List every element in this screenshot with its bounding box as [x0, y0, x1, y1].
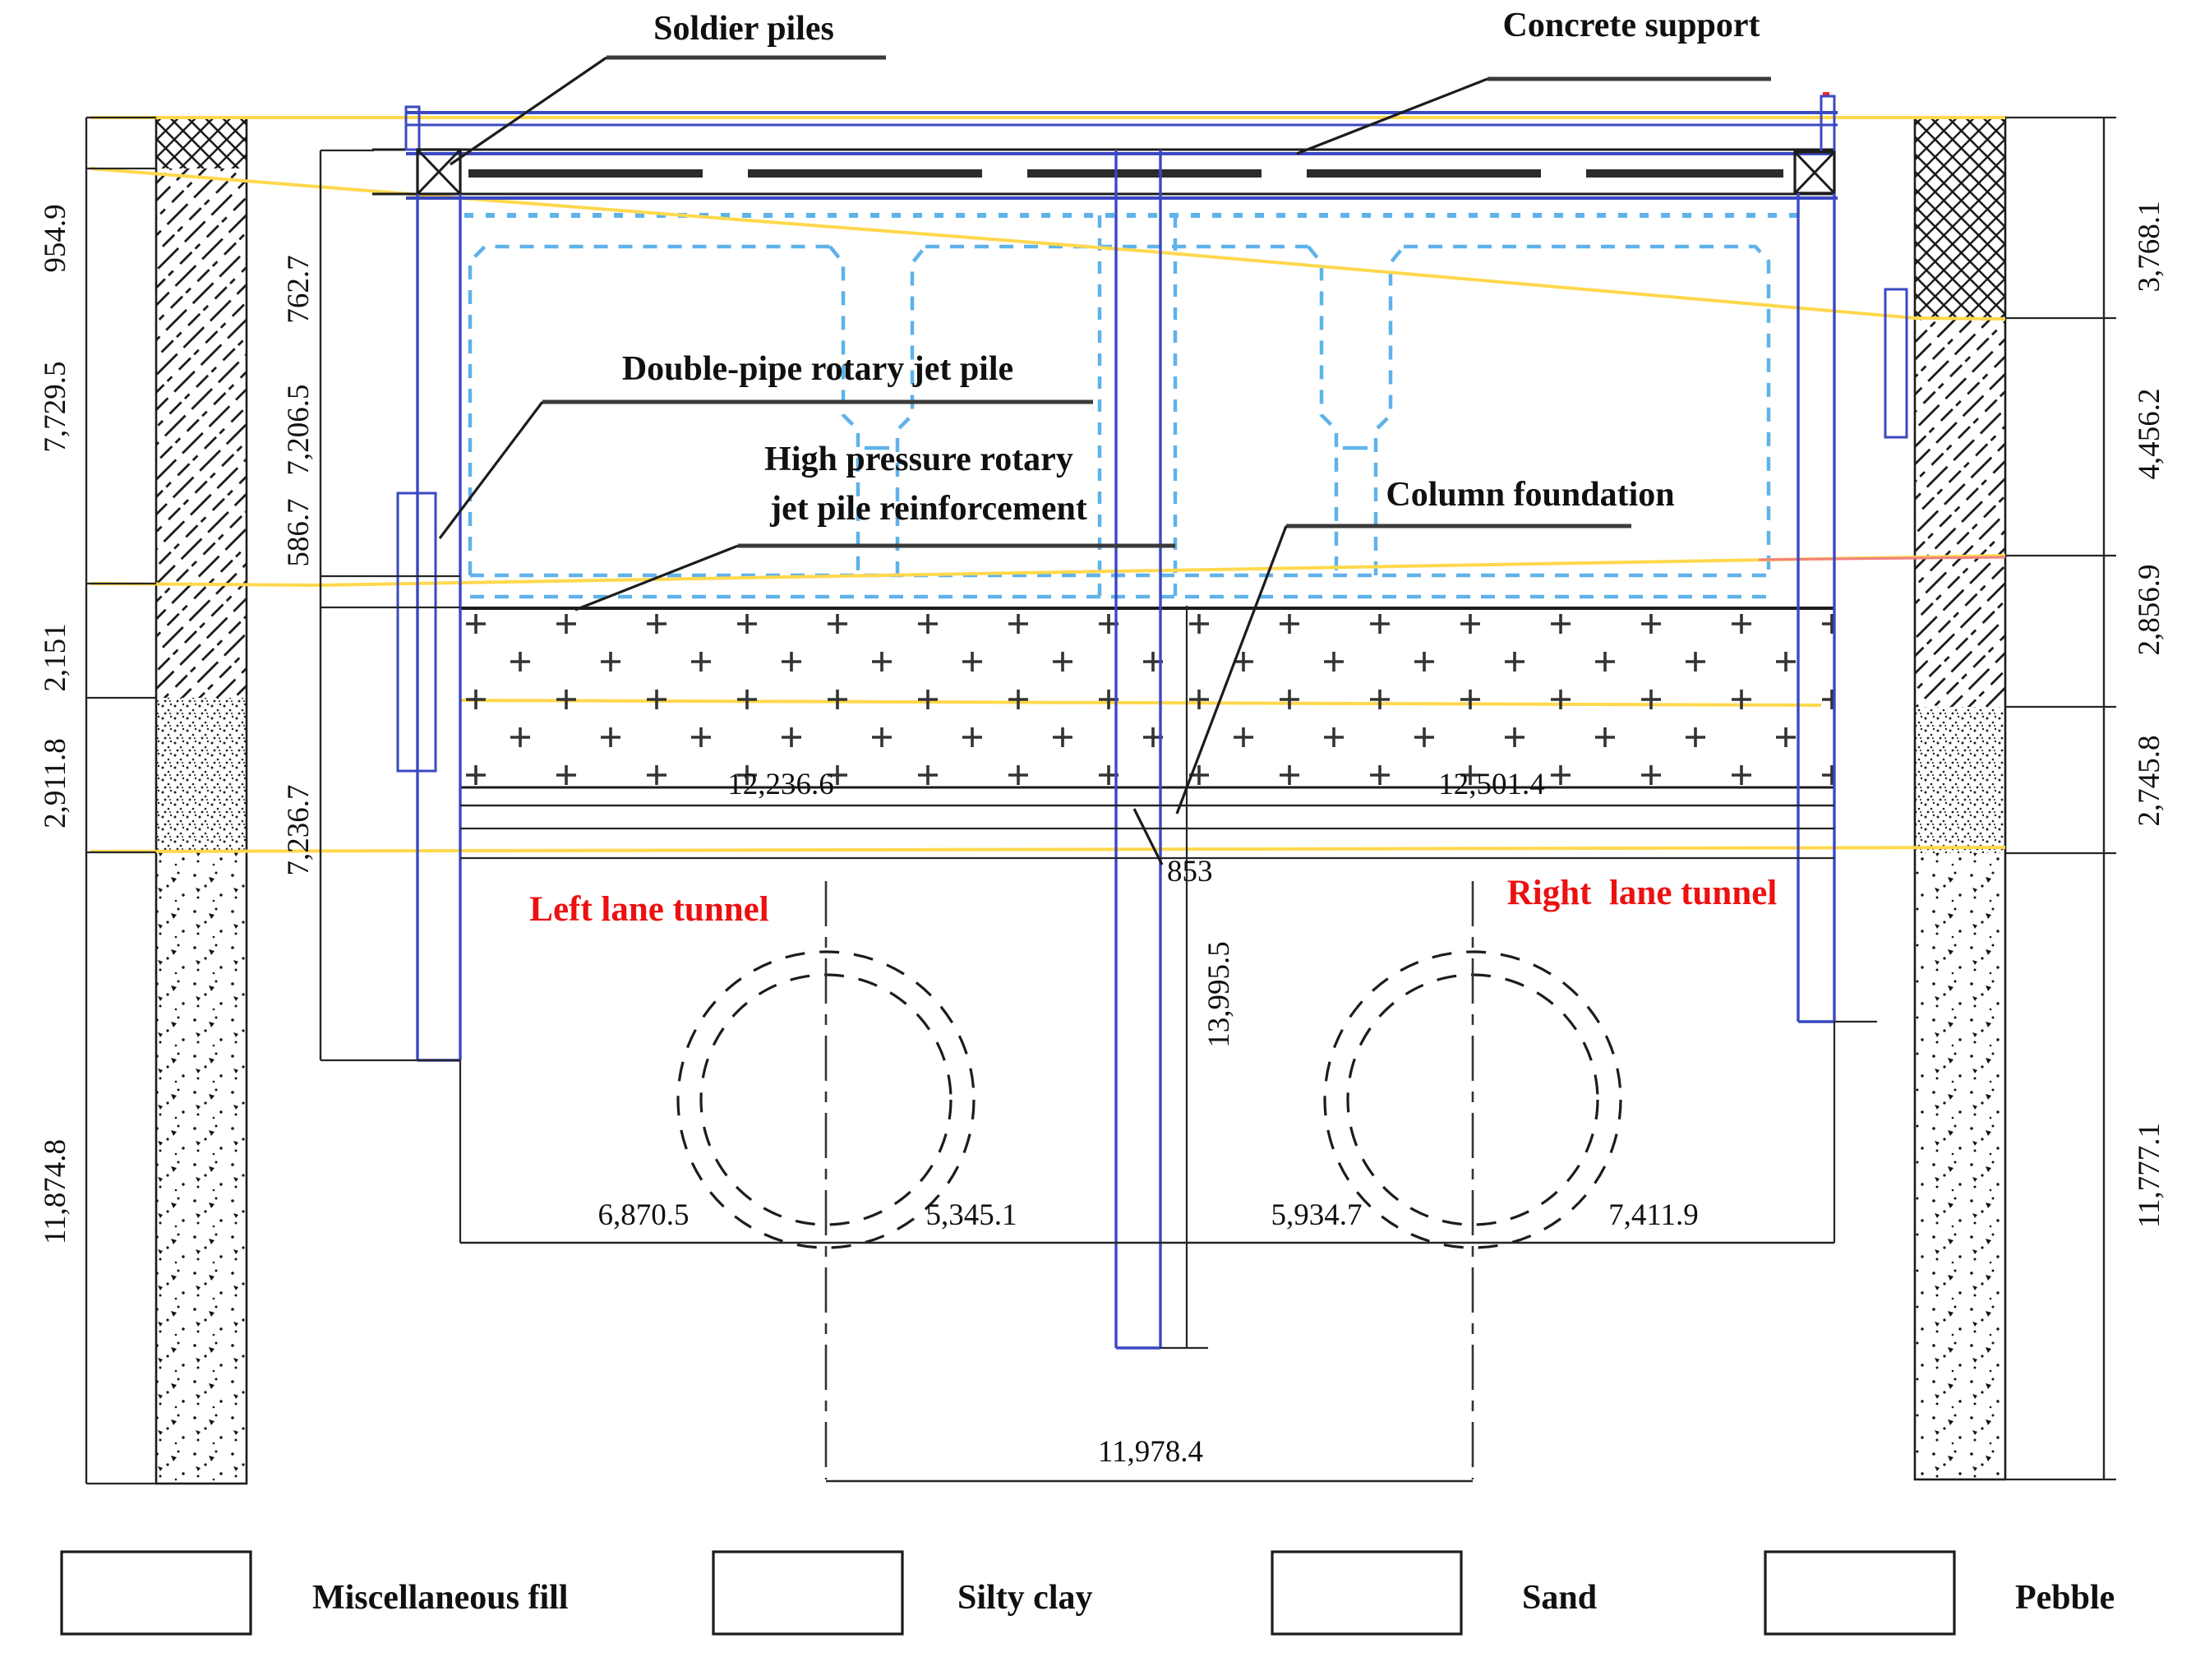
dim-bottom-1: 5,345.1 — [926, 1198, 1017, 1232]
dim-right-outer-2: 2,856.9 — [2133, 565, 2166, 656]
reinforcement-zone — [460, 608, 1834, 787]
legend-item-silty-clay: Silty clay — [713, 1552, 1093, 1634]
left-layer-sand — [156, 698, 247, 852]
callouts: Soldier piles Concrete support Double-pi… — [440, 7, 1777, 929]
dim-left-inner-3: 7,236.7 — [282, 785, 316, 876]
legend-item-miscellaneous-fill: Miscellaneous fill — [62, 1552, 568, 1634]
right-layer-pebble — [1915, 853, 2005, 1479]
dim-span-left: 12,236.6 — [727, 768, 834, 801]
right-borehole-column — [1915, 118, 2005, 1479]
legend-item-pebble: Pebble — [1765, 1552, 2115, 1634]
label-column-foundation: Column foundation — [1386, 476, 1674, 514]
dim-left-outer-0: 954.9 — [39, 204, 72, 272]
label-high-pressure-2: jet pile reinforcement — [769, 490, 1087, 528]
legend-swatch-sand — [1272, 1552, 1461, 1634]
dim-left-inner-0: 762.7 — [282, 255, 316, 323]
dim-right-outer-0: 3,768.1 — [2133, 201, 2166, 293]
legend-swatch-silty-clay — [713, 1552, 902, 1634]
tunnel-spacing-dimension: 11,978.4 — [815, 1435, 1483, 1492]
dim-left-outer-1: 7,729.5 — [39, 362, 72, 453]
legend: Miscellaneous fill Silty clay Sand Pebbl… — [62, 1552, 2115, 1634]
left-soldier-pile — [321, 107, 460, 1243]
left-layer-silty-clay — [156, 168, 247, 698]
jet-pile-dashed-outline — [464, 215, 1798, 607]
label-double-pipe: Double-pipe rotary jet pile — [622, 350, 1013, 388]
tunnel-dimension-chain: 6,870.5 5,345.1 5,934.7 7,411.9 — [450, 1198, 1845, 1253]
dim-bottom-3: 7,411.9 — [1608, 1198, 1699, 1232]
dim-left-inner-1: 7,206.5 — [282, 385, 316, 476]
right-layer-silty-clay — [1915, 318, 2005, 707]
legend-label-miscellaneous-fill: Miscellaneous fill — [312, 1579, 568, 1617]
right-jet-pile-box — [1885, 289, 1907, 437]
dim-span-right: 12,501.4 — [1438, 768, 1545, 801]
dim-left-outer-3: 2,911.8 — [39, 738, 72, 828]
left-layer-miscellaneous-fill — [156, 118, 247, 168]
legend-label-sand: Sand — [1522, 1579, 1597, 1617]
label-soldier-piles: Soldier piles — [653, 10, 834, 48]
sand-pebble-boundary-line — [90, 847, 2005, 852]
dim-right-outer-3: 2,745.8 — [2133, 736, 2166, 827]
tunnels — [678, 881, 1621, 1479]
legend-label-pebble: Pebble — [2015, 1579, 2115, 1617]
label-concrete-support: Concrete support — [1502, 7, 1760, 44]
dim-left-outer-2: 2,151 — [39, 623, 72, 691]
legend-item-sand: Sand — [1272, 1552, 1597, 1634]
dim-column-width: 853 — [1167, 855, 1213, 888]
right-outer-dimension-chain: 3,768.1 4,456.2 2,856.9 2,745.8 11,777.1 — [2005, 107, 2166, 1490]
left-layer-pebble — [156, 852, 247, 1484]
dim-bottom-2: 5,934.7 — [1271, 1198, 1363, 1232]
cross-section-diagram: 954.9 7,729.5 2,151 2,911.8 11,874.8 762… — [0, 0, 2191, 1680]
label-left-tunnel: Left lane tunnel — [529, 890, 769, 929]
legend-swatch-miscellaneous-fill — [62, 1552, 251, 1634]
plus-hatch-area — [460, 612, 1834, 786]
right-layer-sand — [1915, 707, 2005, 853]
fill-clay-boundary-line — [90, 168, 2005, 319]
dim-bottom-0: 6,870.5 — [598, 1198, 690, 1232]
legend-swatch-pebble — [1765, 1552, 1954, 1634]
right-layer-miscellaneous-fill — [1915, 118, 2005, 318]
legend-label-silty-clay: Silty clay — [957, 1579, 1093, 1617]
dim-right-outer-4: 11,777.1 — [2133, 1123, 2166, 1228]
dim-column-depth: 13,995.5 — [1202, 941, 1236, 1048]
left-outer-dimension-chain: 954.9 7,729.5 2,151 2,911.8 11,874.8 — [39, 107, 156, 1494]
left-borehole-column — [156, 118, 247, 1484]
dim-left-inner-2: 586.7 — [282, 498, 316, 566]
label-high-pressure-1: High pressure rotary — [764, 441, 1073, 478]
clay-internal-boundary-line — [90, 556, 2005, 585]
upper-span-dimension: 12,236.6 12,501.4 853 — [450, 768, 1845, 888]
label-right-tunnel: Right lane tunnel — [1507, 874, 1778, 912]
left-inner-dimension-chain: 762.7 7,206.5 586.7 7,236.7 — [282, 140, 460, 1071]
dim-right-outer-1: 4,456.2 — [2133, 389, 2166, 480]
dim-left-outer-4: 11,874.8 — [39, 1139, 72, 1244]
drawing-canvas: 954.9 7,729.5 2,151 2,911.8 11,874.8 762… — [0, 0, 2191, 1680]
dim-tunnel-spacing: 11,978.4 — [1098, 1435, 1203, 1469]
